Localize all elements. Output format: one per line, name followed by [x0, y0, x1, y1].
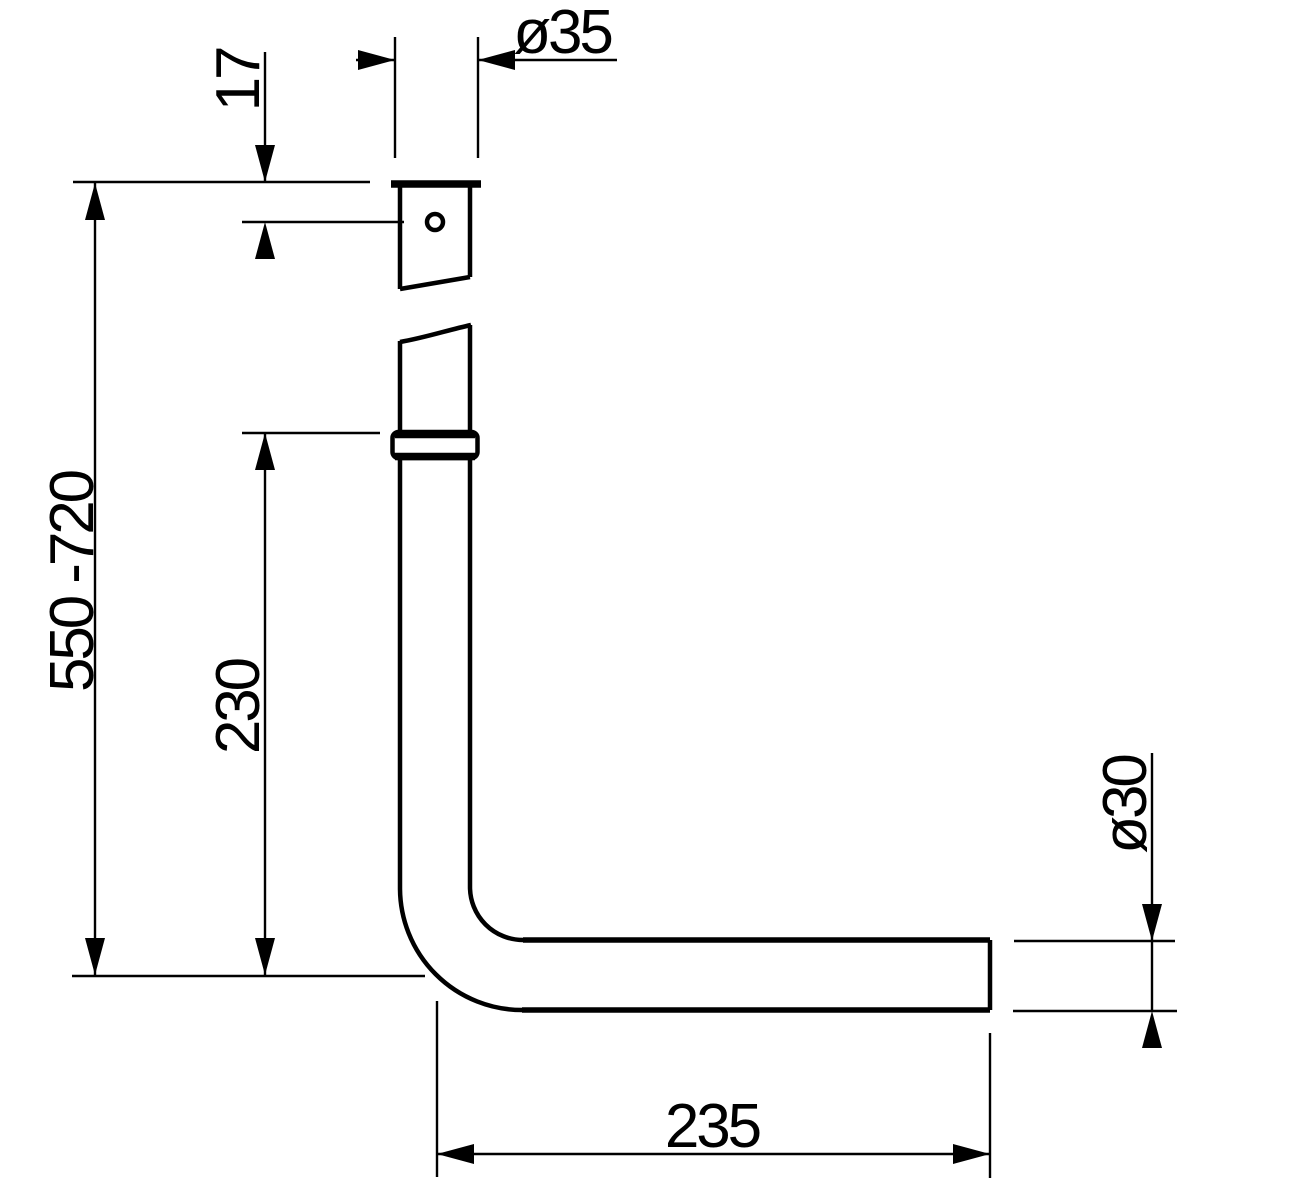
mounting-hole	[427, 214, 443, 230]
dimension-horizontal-length: 235	[437, 1001, 990, 1178]
drawing-page: ø35 17 550 -720 230	[0, 0, 1299, 1181]
dimension-label-vertical-length: 230	[204, 658, 273, 754]
arrowhead-left-pointing	[437, 1144, 474, 1164]
dimension-label-top-diameter: ø35	[513, 0, 611, 67]
arrowhead-down-pointing	[255, 145, 275, 182]
dimension-label-overall-height: 550 -720	[38, 470, 107, 692]
dimension-top-diameter: ø35	[356, 0, 617, 158]
flange-break-cut	[400, 277, 470, 289]
dimension-label-top-hole-offset: 17	[204, 48, 273, 111]
flush-pipe-outline	[391, 184, 990, 1010]
arrowhead-right-pointing	[953, 1144, 990, 1164]
dimension-outlet-diameter: ø30	[1013, 753, 1177, 1048]
pipe-break-cut	[400, 325, 471, 342]
arrowhead-up-pointing	[85, 183, 105, 220]
arrowhead-up-pointing	[255, 433, 275, 470]
arrowhead-up-pointing	[255, 222, 275, 259]
elbow-outer-arc	[400, 888, 522, 1010]
dimension-label-horizontal-length: 235	[665, 1092, 760, 1161]
arrowhead-down-pointing	[1142, 904, 1162, 941]
elbow-inner-arc	[470, 887, 523, 940]
dimension-vertical-length: 230	[204, 433, 380, 975]
dimension-label-outlet-diameter: ø30	[1091, 755, 1160, 854]
arrowhead-down-pointing	[85, 938, 105, 975]
dimension-top-hole-offset: 17	[204, 48, 404, 259]
technical-drawing: ø35 17 550 -720 230	[0, 0, 1299, 1181]
arrowhead-right-pointing	[358, 50, 395, 70]
arrowhead-up-pointing	[1142, 1011, 1162, 1048]
dimension-overall-height: 550 -720	[38, 182, 425, 976]
arrowhead-left-pointing	[478, 50, 515, 70]
arrowhead-down-pointing	[255, 938, 275, 975]
